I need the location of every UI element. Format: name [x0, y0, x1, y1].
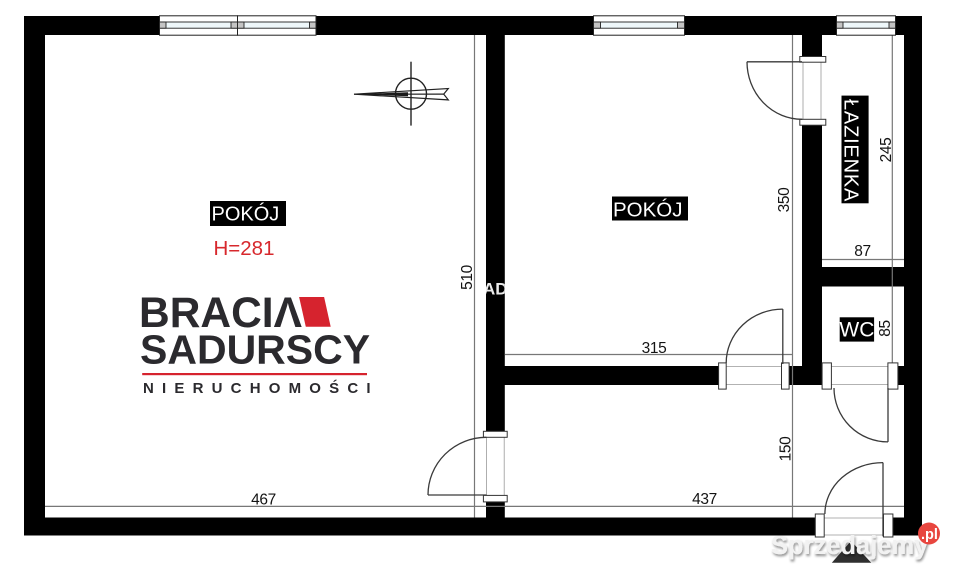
svg-text:85: 85: [877, 320, 894, 336]
svg-text:150: 150: [778, 436, 795, 461]
svg-text:NIERUCHOMOŚCI: NIERUCHOMOŚCI: [143, 379, 379, 397]
svg-text:SADURSCY: SADURSCY: [140, 327, 370, 373]
svg-text:510: 510: [459, 264, 476, 289]
svg-text:Sprzedajemy: Sprzedajemy: [771, 532, 929, 560]
svg-text:POKÓJ: POKÓJ: [212, 202, 280, 225]
svg-text:87: 87: [854, 243, 870, 260]
svg-text:467: 467: [251, 492, 276, 509]
svg-text:ŁAZIENKA: ŁAZIENKA: [840, 99, 862, 202]
svg-text:WC: WC: [839, 319, 874, 342]
svg-text:H=281: H=281: [214, 237, 275, 260]
svg-text:POKÓJ: POKÓJ: [613, 198, 683, 221]
svg-text:437: 437: [692, 491, 717, 508]
svg-text:315: 315: [642, 340, 667, 357]
svg-text:350: 350: [776, 187, 793, 212]
svg-text:.pl: .pl: [921, 527, 938, 543]
svg-text:245: 245: [878, 138, 895, 163]
svg-text:AD: AD: [483, 280, 508, 299]
